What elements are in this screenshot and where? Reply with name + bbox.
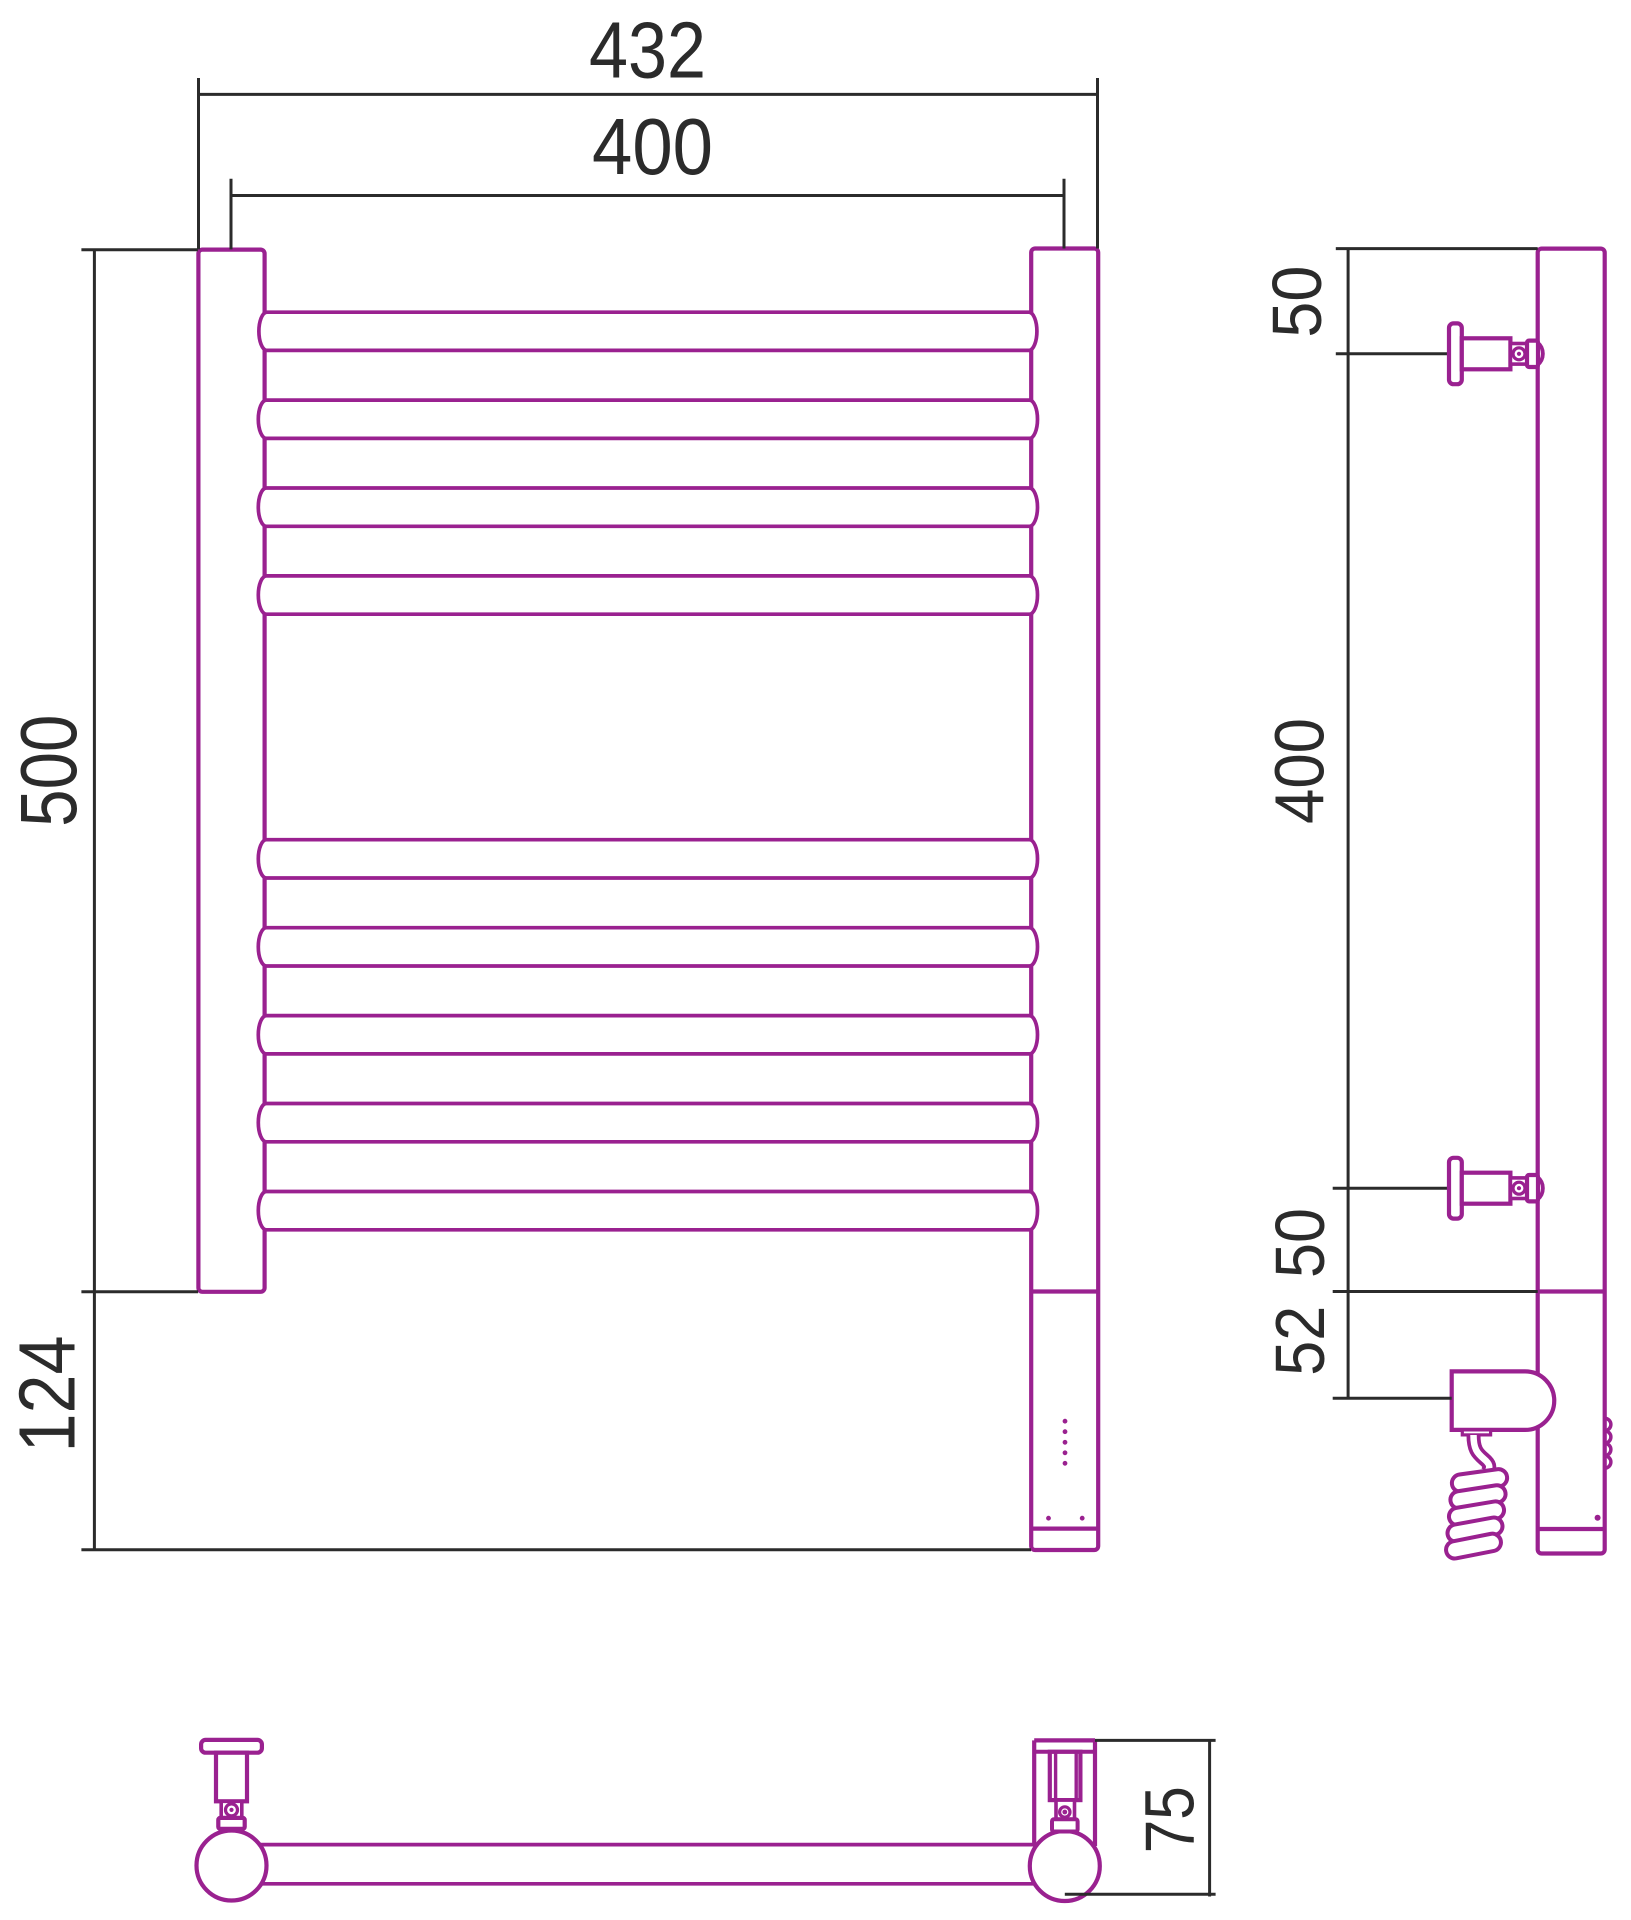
svg-text:50: 50 [1258, 266, 1336, 338]
svg-text:124: 124 [3, 1336, 92, 1453]
svg-text:432: 432 [589, 6, 706, 95]
svg-text:400: 400 [1261, 718, 1339, 824]
svg-text:52: 52 [1261, 1306, 1339, 1376]
svg-text:400: 400 [592, 102, 713, 191]
svg-text:50: 50 [1261, 1208, 1339, 1278]
svg-text:75: 75 [1130, 1786, 1208, 1853]
svg-text:500: 500 [4, 715, 93, 827]
